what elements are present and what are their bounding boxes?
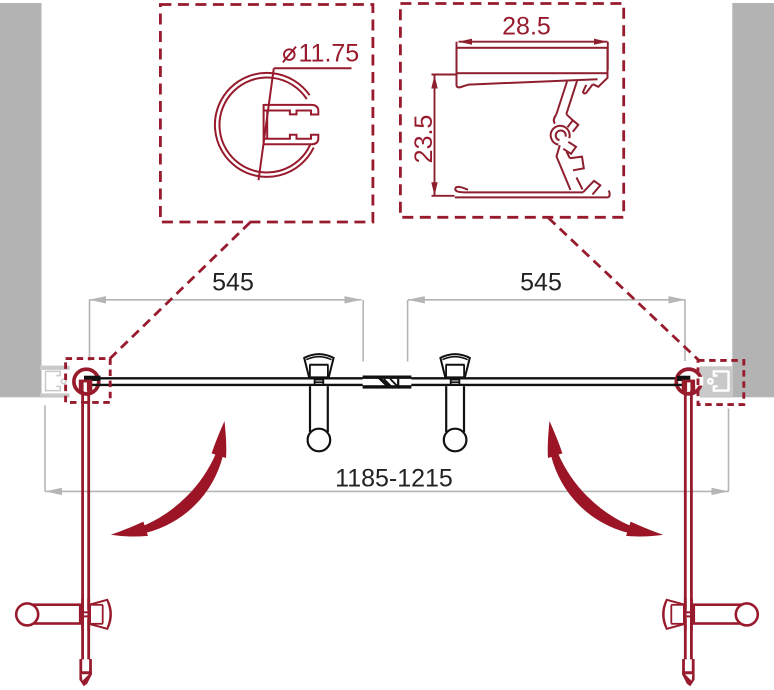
svg-text:23.5: 23.5 <box>410 115 438 164</box>
svg-text:28.5: 28.5 <box>502 13 551 41</box>
svg-text:545: 545 <box>520 269 562 297</box>
svg-text:1185-1215: 1185-1215 <box>335 465 453 493</box>
svg-text:545: 545 <box>212 269 254 297</box>
svg-text:11.75: 11.75 <box>299 40 360 68</box>
